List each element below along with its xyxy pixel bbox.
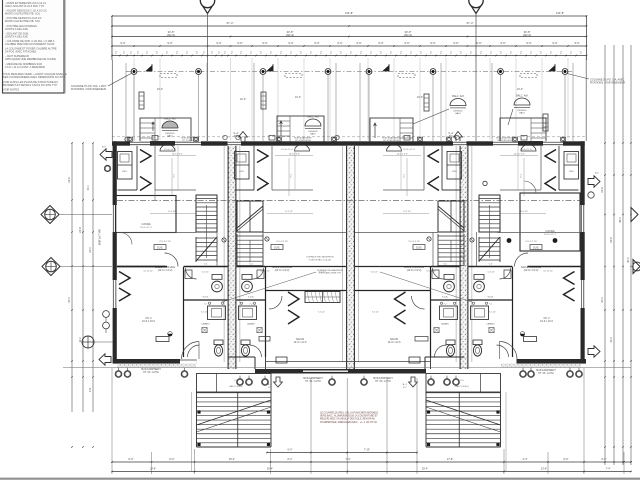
svg-text:6'-2 1/2: 6'-2 1/2 — [520, 211, 528, 213]
svg-text:(14'-6 x 13'-2): (14'-6 x 13'-2) — [524, 269, 539, 272]
svg-text:SURFACE RECHAUFFEUR: SURFACE RECHAUFFEUR — [317, 269, 344, 272]
svg-text:2'-8: 2'-8 — [89, 387, 92, 392]
svg-text:RELEVE AVEC UN SEUIL 4' DES SO: RELEVE AVEC UN SEUIL 4' DES SOLS, REVOIR… — [320, 418, 375, 421]
svg-text:B.V.: B.V. — [102, 147, 106, 149]
svg-text:9'-6": 9'-6" — [453, 41, 458, 45]
svg-text:HT. 4'9 - 1/2"10: HT. 4'9 - 1/2"10 — [143, 372, 159, 374]
svg-text:HT. VOIR DEVIS: HT. VOIR DEVIS — [497, 140, 513, 142]
svg-text:RFU: RFU — [122, 171, 127, 173]
svg-text:8'-0": 8'-0" — [602, 458, 607, 461]
svg-text:3'-0 4'-1 1/2: 3'-0 4'-1 1/2 — [276, 241, 288, 243]
svg-text:GALV.: GALV. — [519, 112, 525, 115]
svg-text:8'-0": 8'-0" — [129, 458, 134, 461]
svg-text:24 POS. AVEC ATTACHES: 24 POS. AVEC ATTACHES — [5, 50, 37, 54]
svg-text:11'-2: 11'-2 — [610, 337, 613, 343]
svg-text:10'-6 x 10'-0: 10'-6 x 10'-0 — [142, 320, 156, 323]
svg-text:CUISINE: CUISINE — [141, 224, 151, 226]
svg-text:(AD×4): (AD×4) — [167, 33, 176, 37]
svg-text:CUIS.: CUIS. — [274, 248, 280, 250]
svg-text:10'-0": 10'-0" — [295, 96, 301, 99]
svg-text:S.D.B.: S.D.B. — [248, 297, 254, 299]
svg-text:CALIBRE PREVOIR AJUSTEMENT SOU: CALIBRE PREVOIR AJUSTEMENT SOUS — [5, 42, 55, 46]
svg-text:CUIS.: CUIS. — [533, 248, 539, 250]
svg-text:3'-0 4'-1 1/2: 3'-0 4'-1 1/2 — [159, 241, 171, 243]
svg-text:40'-0: 40'-0 — [627, 257, 630, 263]
svg-text:10'-6 x 9'-8: 10'-6 x 9'-8 — [172, 154, 183, 156]
svg-text:HT. VOIR DEVIS: HT. VOIR DEVIS — [383, 140, 399, 142]
svg-text:BALCON 8x4: BALCON 8x4 — [229, 385, 243, 388]
svg-text:FIXATIONS. VOIR INGENIEUR: FIXATIONS. VOIR INGENIEUR — [71, 88, 106, 91]
svg-text:9'-6": 9'-6" — [237, 41, 242, 45]
svg-text:7'-2 1/2: 7'-2 1/2 — [489, 312, 497, 314]
svg-text:10'-0": 10'-0" — [157, 88, 163, 91]
svg-text:S.D.B.: S.D.B. — [487, 297, 493, 299]
svg-text:RFU: RFU — [452, 171, 457, 173]
svg-text:(14'-6 x 13'-2): (14'-6 x 13'-2) — [275, 269, 290, 272]
svg-text:S.D.B.: S.D.B. — [442, 297, 448, 299]
svg-text:S.+1': S.+1' — [448, 133, 454, 135]
svg-text:VOIR NOTES: VOIR NOTES — [3, 88, 19, 92]
svg-text:HT. 4'9 - 1/2"10: HT. 4'9 - 1/2"10 — [538, 373, 554, 375]
svg-text:SURFACE RECHAUFFEUR: SURFACE RECHAUFFEUR — [306, 256, 334, 259]
svg-text:7'-2 1/2: 7'-2 1/2 — [318, 312, 326, 314]
svg-text:7'-2 1/2: 7'-2 1/2 — [372, 312, 380, 314]
svg-text:9'-6": 9'-6" — [120, 41, 125, 45]
svg-text:15'-6 x 11'-6: 15'-6 x 11'-6 — [164, 149, 177, 151]
svg-text:9'-6": 9'-6" — [552, 41, 557, 45]
svg-text:BALC. 4x8: BALC. 4x8 — [452, 95, 464, 98]
svg-text:LAVABO: LAVABO — [201, 323, 209, 326]
svg-text:17'-8": 17'-8" — [447, 458, 453, 461]
svg-text:15'-4": 15'-4" — [229, 458, 235, 461]
svg-text:9'-6": 9'-6" — [216, 41, 221, 45]
svg-text:MUR & BATIMENT: MUR & BATIMENT — [536, 369, 556, 372]
svg-text:9'-6": 9'-6" — [500, 41, 505, 45]
svg-text:39'-0: 39'-0 — [88, 185, 90, 191]
svg-text:6'-0": 6'-0" — [288, 449, 293, 452]
svg-text:(AD×4): (AD×4) — [523, 33, 532, 37]
svg-text:DES COORDONNEES AVEC DIMENSION: DES COORDONNEES AVEC DIMENSIONS DU SITE — [3, 75, 65, 79]
svg-text:25'-4": 25'-4" — [422, 468, 428, 471]
svg-text:9'-6": 9'-6" — [262, 41, 267, 45]
svg-text:6'-2 1/2: 6'-2 1/2 — [285, 211, 293, 213]
svg-text:LAVABO: LAVABO — [486, 323, 494, 326]
svg-text:VOIR LAVE-LINGE TYP.: VOIR LAVE-LINGE TYP. — [319, 272, 342, 275]
svg-text:11'-2: 11'-2 — [79, 337, 82, 343]
svg-text:10'-0": 10'-0" — [517, 88, 523, 91]
svg-text:BALC. 4x8: BALC. 4x8 — [164, 118, 176, 121]
svg-text:9'-6": 9'-6" — [404, 41, 409, 45]
svg-text:BALC. 4x8: BALC. 4x8 — [307, 116, 319, 119]
svg-text:(AD×4): (AD×4) — [404, 33, 413, 37]
svg-text:10'-6 x 9'-8: 10'-6 x 9'-8 — [514, 154, 525, 156]
svg-text:10'-6 x 9'-8: 10'-6 x 9'-8 — [397, 154, 408, 156]
svg-text:MUR & BATIMENT: MUR & BATIMENT — [373, 377, 393, 380]
svg-text:9'-6": 9'-6" — [430, 41, 435, 45]
svg-text:GALV.: GALV. — [167, 135, 173, 138]
svg-text:12'-0 x 11'-6: 12'-0 x 11'-6 — [294, 341, 307, 344]
svg-text:9'-6": 9'-6" — [378, 41, 383, 45]
svg-text:4'-4": 4'-4" — [523, 458, 528, 461]
svg-text:RFU: RFU — [239, 171, 244, 173]
svg-text:CHARPENTIER, AMENAGER AVEC...: CHARPENTIER, AMENAGER AVEC... +1 -1 /10 … — [320, 421, 377, 424]
svg-text:134'-8": 134'-8" — [345, 11, 353, 15]
svg-text:9'-6": 9'-6" — [314, 41, 319, 45]
svg-text:MURS CALFEUTRE FIB. SOL: MURS CALFEUTRE FIB. SOL — [5, 12, 41, 16]
svg-text:8'-0": 8'-0" — [170, 458, 175, 461]
svg-text:5'-6 1/2: 5'-6 1/2 — [371, 272, 379, 274]
svg-text:6'-2 1/2: 6'-2 1/2 — [403, 211, 411, 213]
svg-text:S.D.B.: S.D.B. — [202, 297, 208, 299]
svg-text:(14'-6 x 13'-2): (14'-6 x 13'-2) — [158, 269, 173, 272]
svg-text:APPLIQUER UNE MEMBRANE DE COUP: APPLIQUER UNE MEMBRANE DE COUPE — [5, 57, 56, 61]
svg-text:CUIS.: CUIS. — [416, 248, 422, 250]
svg-text:15'-6 x 11'-6: 15'-6 x 11'-6 — [403, 149, 416, 151]
svg-text:9'-6": 9'-6" — [526, 41, 531, 45]
svg-text:7'-4": 7'-4" — [606, 468, 611, 471]
svg-text:BALCON 8x4: BALCON 8x4 — [455, 385, 469, 388]
svg-text:12'-10 1/2: 12'-10 1/2 — [143, 271, 153, 273]
svg-text:JOINTS A DEL AXE: JOINTS A DEL AXE — [5, 34, 28, 38]
svg-text:13'-0: 13'-0 — [89, 247, 92, 253]
svg-text:B.-1': B.-1' — [403, 384, 408, 386]
svg-text:VERS BALC. ALUMINIUM SOUS LA C: VERS BALC. ALUMINIUM SOUS LA COUVERTURE … — [320, 415, 378, 418]
svg-text:9'-6": 9'-6" — [476, 41, 481, 45]
svg-text:LE COUVERCLE (PELL DE) LA PLAN: LE COUVERCLE (PELL DE) LA PLANCHER AMOVI… — [320, 412, 378, 415]
svg-text:CUIS.: CUIS. — [157, 248, 163, 250]
svg-text:15'-6 x 11'-6: 15'-6 x 11'-6 — [281, 149, 294, 151]
svg-text:7'-10": 7'-10" — [364, 449, 370, 452]
svg-text:5'-6 1/2: 5'-6 1/2 — [488, 272, 496, 274]
svg-text:67'-4": 67'-4" — [227, 21, 234, 25]
svg-text:12'-10 1/2: 12'-10 1/2 — [426, 271, 436, 273]
svg-text:5'-6 1/2: 5'-6 1/2 — [202, 272, 210, 274]
svg-text:10'-6 x 10'-0: 10'-6 x 10'-0 — [540, 320, 554, 323]
svg-text:14'-6: 14'-6 — [601, 187, 604, 193]
svg-text:B.-1': B.-1' — [268, 384, 273, 386]
svg-text:15'-6 x 11'-6: 15'-6 x 11'-6 — [520, 149, 533, 151]
svg-text:GALV.: GALV. — [455, 112, 461, 115]
svg-text:VOIR DETAIL 4 / A-101: VOIR DETAIL 4 / A-101 — [309, 259, 333, 262]
svg-text:25'-4": 25'-4" — [267, 468, 273, 471]
svg-text:HT. 4'9 - 1/2"10: HT. 4'9 - 1/2"10 — [375, 381, 391, 383]
svg-text:9'-6": 9'-6" — [356, 41, 361, 45]
svg-text:10'-0 x 11'-2: 10'-0 x 11'-2 — [140, 227, 153, 229]
svg-text:10'-0 x 11'-2: 10'-0 x 11'-2 — [544, 234, 557, 236]
svg-text:38'-2: 38'-2 — [619, 217, 622, 223]
svg-text:3'-0 4'-1 1/2: 3'-0 4'-1 1/2 — [408, 241, 420, 243]
svg-text:(14'-6 x 13'-2): (14'-6 x 13'-2) — [407, 269, 422, 272]
svg-text:10'-0": 10'-0" — [240, 98, 246, 101]
svg-text:134'-8": 134'-8" — [556, 11, 564, 15]
svg-text:19'-2: 19'-2 — [68, 297, 71, 303]
svg-text:MURS CALFEUTRE FIB. SOL: MURS CALFEUTRE FIB. SOL — [5, 19, 41, 23]
svg-text:AVEC ISOLANT R-24.5 MIN. TYP.: AVEC ISOLANT R-24.5 MIN. TYP. — [5, 4, 45, 8]
svg-text:8'-2": 8'-2" — [288, 458, 293, 461]
svg-text:13'-8": 13'-8" — [150, 468, 156, 471]
svg-text:9'-6": 9'-6" — [337, 41, 342, 45]
svg-text:(AD×4): (AD×4) — [286, 33, 295, 37]
svg-text:LAVABO: LAVABO — [247, 323, 255, 326]
svg-text:8'-0": 8'-0" — [564, 458, 569, 461]
svg-text:14'-6: 14'-6 — [68, 177, 71, 183]
svg-text:12'-10 1/2: 12'-10 1/2 — [543, 271, 553, 273]
svg-text:HT. 4'9 - 1/2"10: HT. 4'9 - 1/2"10 — [305, 381, 321, 383]
svg-text:10'-0": 10'-0" — [417, 96, 423, 99]
svg-text:JOINTS A DEL AXE: JOINTS A DEL AXE — [5, 27, 28, 31]
svg-text:RFU: RFU — [569, 171, 574, 173]
svg-text:MUR & BATIMENT: MUR & BATIMENT — [141, 368, 161, 371]
svg-text:3'-0 4'-1 1/2: 3'-0 4'-1 1/2 — [525, 241, 537, 243]
svg-text:7'-6": 7'-6" — [346, 458, 351, 461]
svg-text:24'-8: 24'-8 — [610, 237, 613, 243]
svg-text:LAVABO: LAVABO — [441, 323, 449, 326]
svg-text:6'-2 1/2: 6'-2 1/2 — [168, 211, 176, 213]
svg-text:9'-6": 9'-6" — [574, 41, 579, 45]
svg-text:19'-2: 19'-2 — [601, 297, 604, 303]
svg-text:24'-8: 24'-8 — [79, 227, 82, 233]
svg-text:12'-0 x 11'-6: 12'-0 x 11'-6 — [388, 341, 401, 344]
svg-text:BALC. 4x8: BALC. 4x8 — [516, 95, 528, 98]
svg-text:9'-6": 9'-6" — [288, 41, 293, 45]
svg-text:HT. VOIR DEVIS: HT. VOIR DEVIS — [295, 140, 311, 142]
svg-text:S.+1': S.+1' — [233, 133, 239, 135]
svg-text:MUR 2x6 TYPE: MUR 2x6 TYPE — [100, 228, 102, 245]
svg-text:GALV.: GALV. — [310, 133, 316, 136]
svg-text:MUR & BATIMENT: MUR & BATIMENT — [303, 377, 323, 380]
svg-text:2 1/2 x 11 1/4 CONT. A MESURER: 2 1/2 x 11 1/4 CONT. A MESURER — [5, 65, 45, 69]
svg-text:13'-8": 13'-8" — [541, 468, 547, 471]
svg-text:BATIMENT ET DETAILS CIVILS DU: BATIMENT ET DETAILS CIVILS DU SITE TYP. — [3, 83, 57, 87]
svg-text:FIXATIONS. VOIR INGENIEUR: FIXATIONS. VOIR INGENIEUR — [590, 82, 625, 85]
svg-text:9'-6": 9'-6" — [167, 41, 172, 45]
svg-text:B.V.: B.V. — [595, 173, 599, 175]
svg-text:10'-6 x 9'-8: 10'-6 x 9'-8 — [289, 154, 300, 156]
svg-text:67'-4": 67'-4" — [467, 21, 474, 25]
